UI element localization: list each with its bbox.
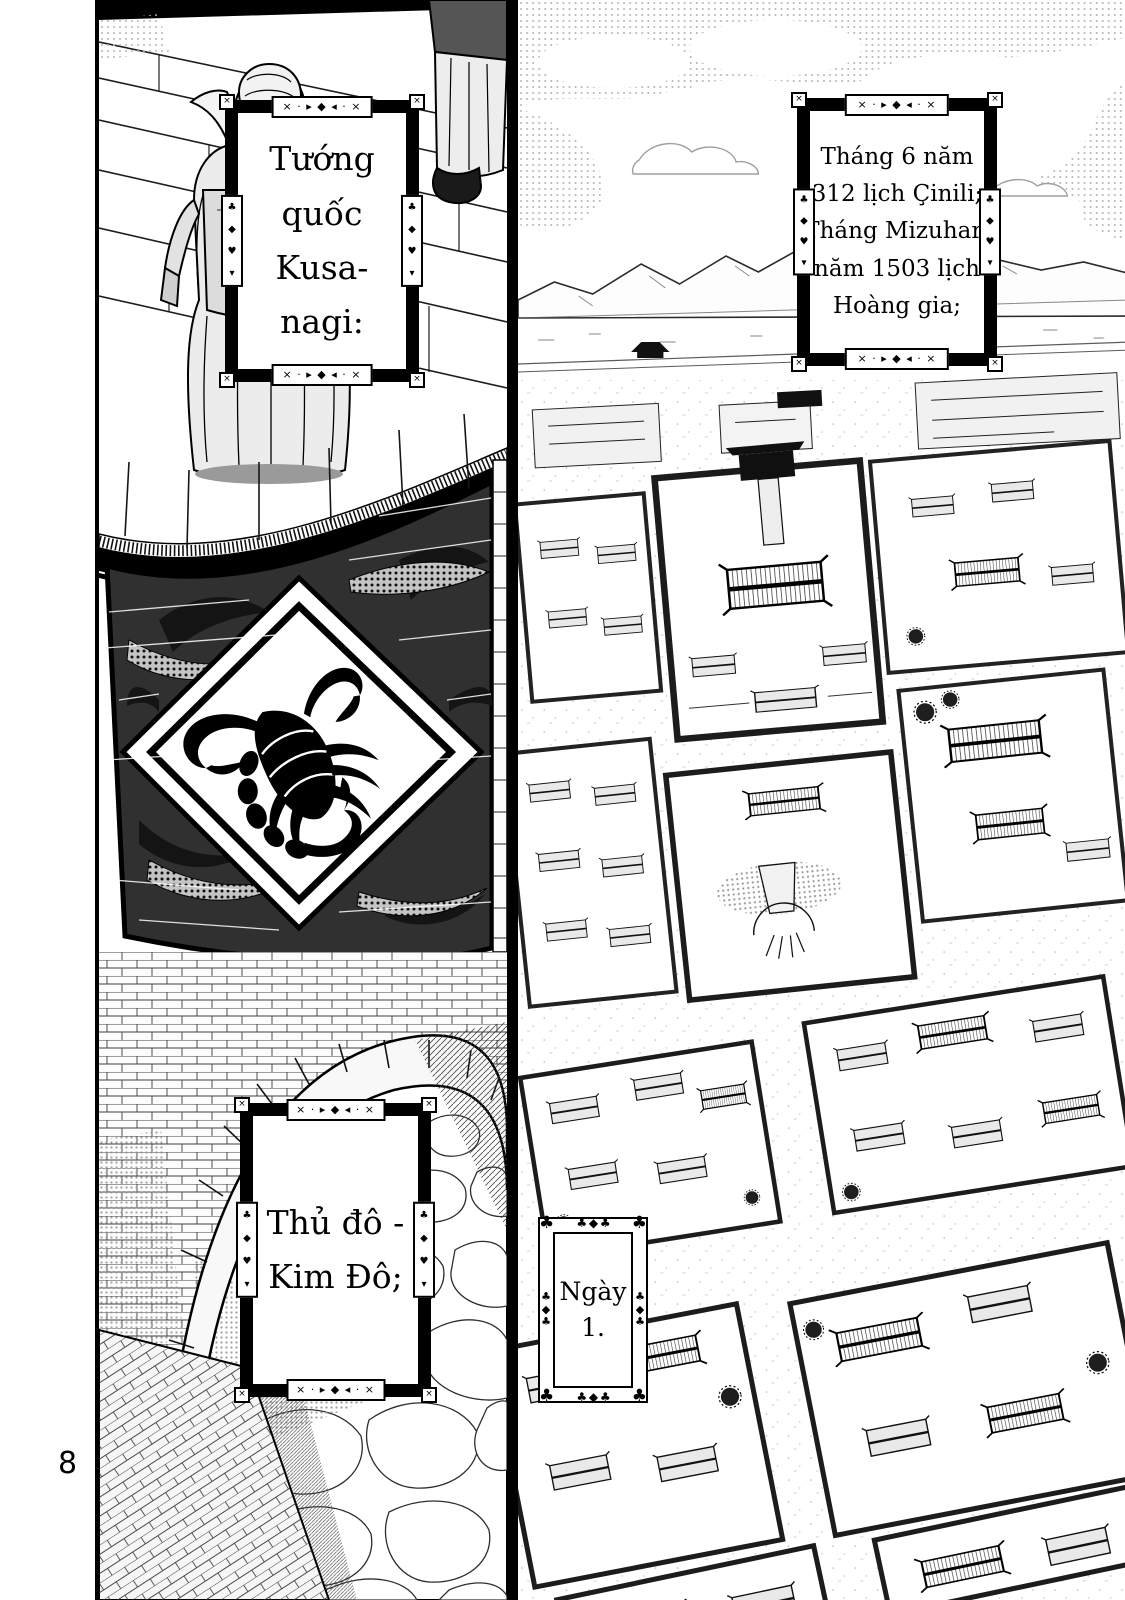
caption-line: quốc xyxy=(281,187,362,241)
ornament-glyph: ◆ xyxy=(408,225,416,235)
frame-ornament-bottom: × · ▸ ◆ ◂ · × xyxy=(272,364,373,386)
frame-ornament-top: × · ▸ ◆ ◂ · × xyxy=(286,1099,385,1121)
caption-capital-box: × · ▸ ◆ ◂ · × × · ▸ ◆ ◂ · × ♣ ◆ ♥ ▾ ♣ ◆ … xyxy=(240,1103,431,1397)
ornament-glyph: ▾ xyxy=(421,1280,426,1290)
ornament-glyph: ▾ xyxy=(801,258,806,268)
ornament-glyph: ◆ xyxy=(228,225,236,235)
frame-corner-icon: × xyxy=(234,1097,250,1113)
frame-ornament-left: ♣ ◆ ♥ ▾ xyxy=(793,188,815,275)
frame-corner-icon: × xyxy=(421,1097,437,1113)
city-aerial-view xyxy=(518,373,1125,1600)
caption-line: năm 1503 lịch xyxy=(814,251,980,288)
ornament-glyph: ◆ xyxy=(986,217,994,227)
ornament-glyph: ▾ xyxy=(244,1280,249,1290)
caption-line: Tháng 6 năm xyxy=(821,139,974,176)
ornament-glyph: ♣ xyxy=(228,203,237,213)
caption-date-box: × · ▸ ◆ ◂ · × × · ▸ ◆ ◂ · × ♣ ◆ ♥ ▾ ♣ ◆ … xyxy=(797,98,997,366)
frame-ornament-left: ♣ ◆ ♥ ▾ xyxy=(236,1202,258,1298)
frame-corner-icon: ♣ xyxy=(632,1388,647,1405)
frame-corner-icon: × xyxy=(409,94,425,110)
frame-corner-icon: ♣ xyxy=(539,1215,554,1232)
ornament-glyph: ▾ xyxy=(409,269,414,279)
ornament-glyph: ♥ xyxy=(800,237,809,247)
frame-corner-icon: × xyxy=(219,372,235,388)
ornament-glyph: ♥ xyxy=(420,1257,429,1267)
ornament-glyph: ◆ xyxy=(800,217,808,227)
frame-corner-icon: × xyxy=(987,92,1003,108)
second-figure xyxy=(429,0,507,203)
ornament-glyph: ◆ xyxy=(243,1233,251,1243)
ornament-glyph: ♣ xyxy=(408,203,417,213)
ornament-glyph: ▾ xyxy=(229,269,234,279)
frame-ornament-bottom: ♣ ◆ ♣ xyxy=(576,1391,609,1403)
frame-ornament-right: ♣◆♣ xyxy=(634,1291,646,1329)
ornament-glyph: ♥ xyxy=(228,247,237,257)
wall-corner-column xyxy=(493,460,507,952)
frame-ornament-top: × · ▸ ◆ ◂ · × xyxy=(272,96,373,118)
frame-ornament-left: ♣◆♣ xyxy=(540,1291,552,1329)
frame-corner-icon: × xyxy=(791,92,807,108)
ornament-glyph: ♥ xyxy=(243,1257,252,1267)
ornament-glyph: ♣ xyxy=(800,196,809,206)
frame-corner-icon: × xyxy=(234,1387,250,1403)
frame-ornament-right: ♣ ◆ ♥ ▾ xyxy=(413,1202,435,1298)
frame-ornament-right: ♣ ◆ ♥ ▾ xyxy=(979,188,1001,275)
caption-line: nagi: xyxy=(280,295,364,349)
page-number: 8 xyxy=(58,1446,77,1481)
frame-corner-icon: × xyxy=(409,372,425,388)
ornament-glyph: ♣ xyxy=(986,196,995,206)
caption-line: Tháng Mizuhari xyxy=(804,213,989,250)
caption-line: Ngày xyxy=(560,1274,627,1310)
caption-line: Kusa- xyxy=(276,241,369,295)
ornament-glyph: ◆ xyxy=(420,1233,428,1243)
ornament-glyph: ♣ xyxy=(420,1210,429,1220)
frame-corner-icon: × xyxy=(987,356,1003,372)
caption-line: 1. xyxy=(581,1310,605,1346)
ornament-glyph: ♣ xyxy=(243,1210,252,1220)
frame-corner-icon: ♣ xyxy=(632,1215,647,1232)
frame-ornament-bottom: × · ▸ ◆ ◂ · × xyxy=(845,348,949,370)
caption-day-inner: Ngày 1. xyxy=(553,1232,633,1388)
frame-corner-icon: ♣ xyxy=(539,1388,554,1405)
caption-general-box: × · ▸ ◆ ◂ · × × · ▸ ◆ ◂ · × ♣ ◆ ♥ ▾ ♣ ◆ … xyxy=(225,100,419,382)
caption-day-box: ♣ ◆ ♣ ♣ ◆ ♣ ♣◆♣ ♣◆♣ ♣ ♣ ♣ ♣ Ngày 1. xyxy=(538,1217,648,1403)
ornament-glyph: ♥ xyxy=(986,237,995,247)
frame-ornament-bottom: × · ▸ ◆ ◂ · × xyxy=(286,1379,385,1401)
caption-line: 312 lịch Çinili; xyxy=(812,176,983,213)
caption-line: Tướng xyxy=(269,132,375,186)
ornament-glyph: ▾ xyxy=(987,258,992,268)
frame-corner-icon: × xyxy=(791,356,807,372)
manga-page: × · ▸ ◆ ◂ · × × · ▸ ◆ ◂ · × ♣ ◆ ♥ ▾ ♣ ◆ … xyxy=(0,0,1125,1600)
frame-ornament-left: ♣ ◆ ♥ ▾ xyxy=(221,195,243,287)
caption-line: Kim Đô; xyxy=(268,1250,403,1304)
frame-corner-icon: × xyxy=(219,94,235,110)
frame-ornament-top: ♣ ◆ ♣ xyxy=(576,1217,609,1229)
caption-line: Hoàng gia; xyxy=(833,288,961,325)
ornament-glyph: ♥ xyxy=(408,247,417,257)
frame-ornament-top: × · ▸ ◆ ◂ · × xyxy=(845,94,949,116)
caption-line: Thủ đô - xyxy=(267,1196,405,1250)
frame-corner-icon: × xyxy=(421,1387,437,1403)
frame-ornament-right: ♣ ◆ ♥ ▾ xyxy=(401,195,423,287)
